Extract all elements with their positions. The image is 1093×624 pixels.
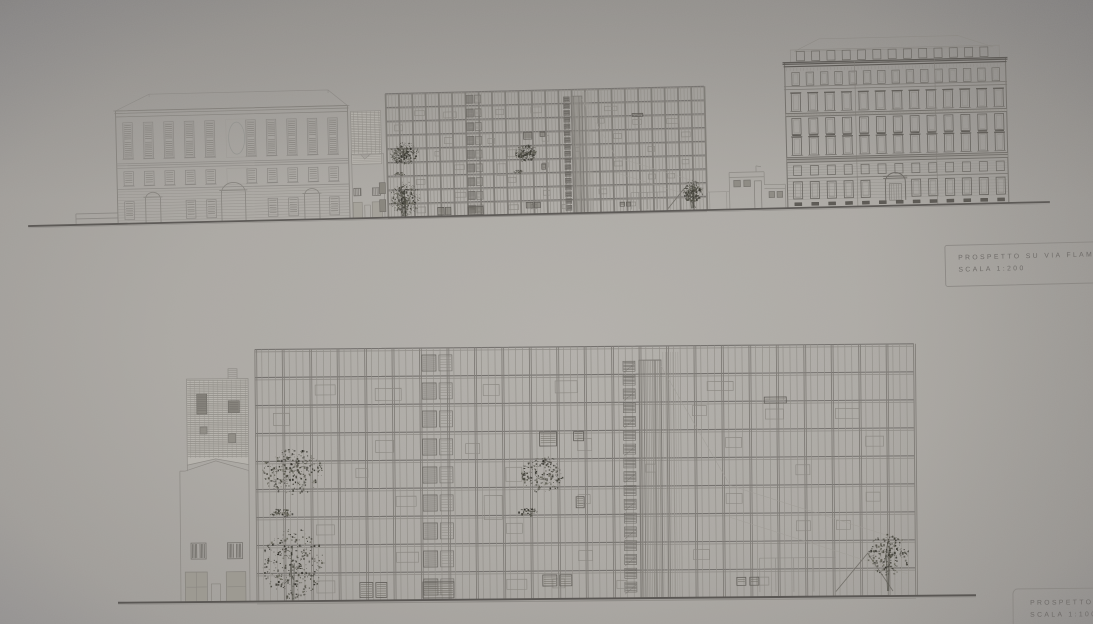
svg-text:PROSPETTO SU VIA FLAMINIA: PROSPETTO SU VIA FLAMINIA (1030, 598, 1093, 606)
svg-text:SCALA 1:100: SCALA 1:100 (1030, 611, 1093, 619)
